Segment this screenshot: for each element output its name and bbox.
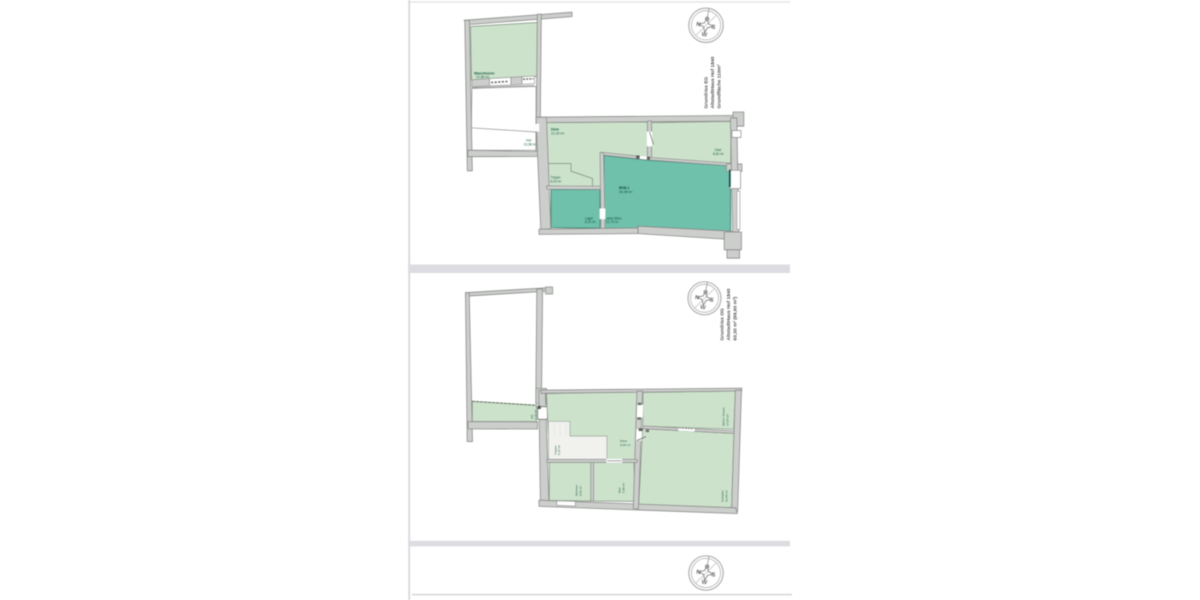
svg-text:6,03 m²: 6,03 m²	[551, 179, 562, 183]
svg-text:21,75 m²: 21,75 m²	[606, 220, 619, 224]
svg-text:AltstadtHaus Hof 1840: AltstadtHaus Hof 1840	[710, 56, 716, 108]
svg-text:5,10 m²: 5,10 m²	[557, 445, 561, 455]
svg-text:9,04 m²: 9,04 m²	[620, 443, 631, 447]
svg-text:13,38 m²: 13,38 m²	[524, 143, 538, 147]
svg-text:8,10 m²: 8,10 m²	[585, 220, 596, 224]
svg-text:Grundfläche 110m²: Grundfläche 110m²	[717, 64, 723, 108]
svg-text:17,04 m²: 17,04 m²	[725, 414, 729, 426]
svg-text:Grundriss OG: Grundriss OG	[720, 308, 726, 341]
svg-text:12,30 m²: 12,30 m²	[551, 131, 565, 135]
svg-text:22,08 m²: 22,08 m²	[724, 490, 728, 502]
svg-text:9,56 m²: 9,56 m²	[578, 486, 582, 496]
svg-text:8,60 m²: 8,60 m²	[713, 152, 724, 156]
svg-text:34,38 m²: 34,38 m²	[619, 190, 633, 194]
svg-text:Grundriss EG: Grundriss EG	[704, 77, 710, 109]
svg-text:5,99 m²: 5,99 m²	[621, 483, 625, 493]
svg-text:1,10 m²: 1,10 m²	[533, 410, 537, 420]
svg-text:60,30 m² (69,60 m²): 60,30 m² (69,60 m²)	[733, 296, 739, 340]
svg-text:AltstadtHaus Hof 1840: AltstadtHaus Hof 1840	[726, 288, 732, 340]
